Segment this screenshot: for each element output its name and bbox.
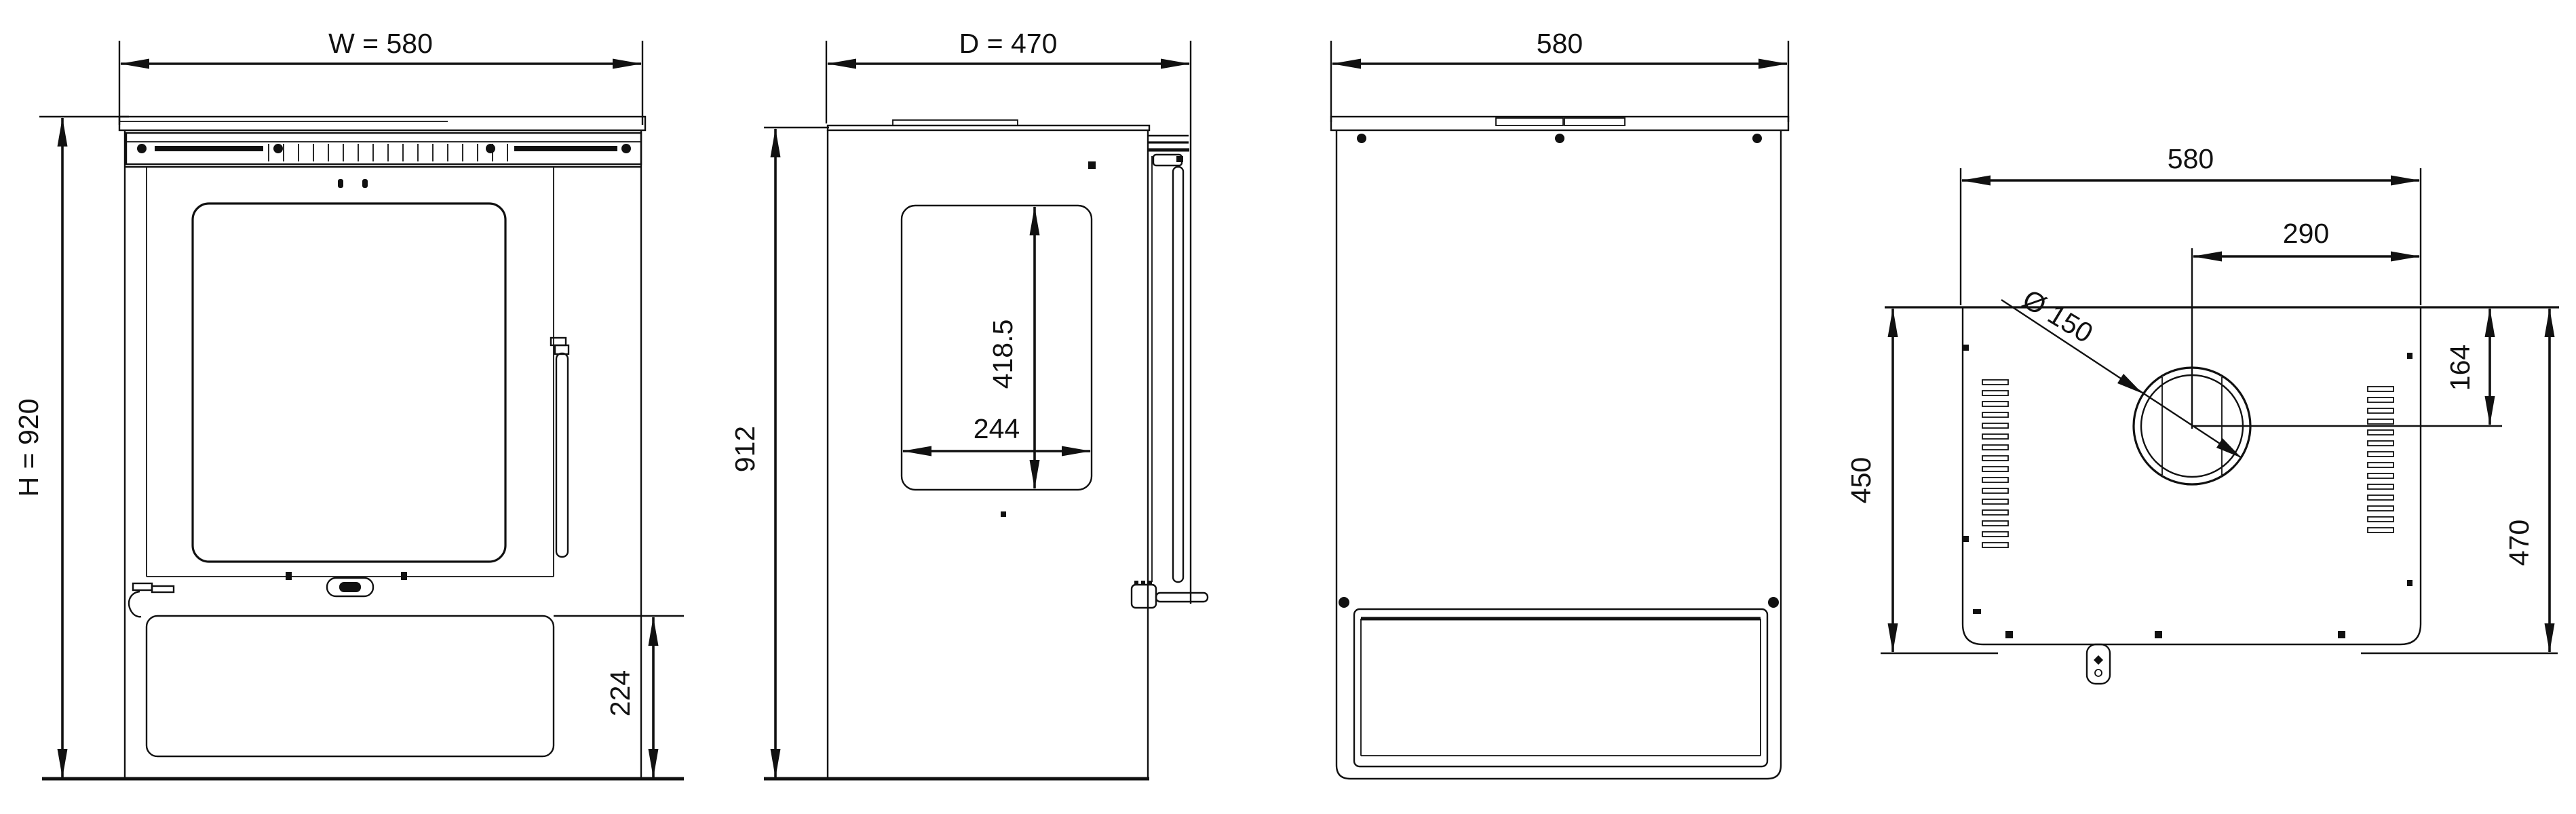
front-width-label: W = 580 [328, 28, 433, 59]
top-fastener-marks [1963, 345, 2412, 638]
side-handle-bar [1173, 167, 1183, 582]
side-window-width-label: 244 [974, 413, 1020, 444]
front-height-dimension: H = 920 [13, 117, 129, 777]
top-left-vent-slots [1982, 380, 2008, 547]
front-air-grille [126, 133, 641, 164]
side-height-label: 912 [729, 426, 761, 472]
front-body-outline [125, 130, 641, 779]
front-width-dimension: W = 580 [119, 28, 642, 125]
top-view: 580 290 [1845, 143, 2559, 684]
back-body-outline [1337, 130, 1781, 779]
side-handle-bracket [1132, 585, 1156, 608]
door-top-vent-dot [362, 179, 368, 188]
side-height-dimension: 912 [729, 128, 829, 777]
front-door-bottom-details [129, 572, 407, 617]
side-depth-dimension: D = 470 [826, 28, 1191, 604]
flue-centerlines [2192, 248, 2502, 429]
front-view: W = 580 H = 920 [13, 28, 684, 779]
top-flue-offset-y-label: 164 [2444, 345, 2476, 391]
front-door-glass [193, 179, 505, 562]
door-hinge [152, 586, 174, 592]
back-width-dimension: 580 [1331, 28, 1788, 122]
door-hinge-hook [129, 592, 141, 617]
door-top-vent-dot [338, 179, 343, 188]
front-base-height-label: 224 [604, 670, 636, 716]
top-flue-diameter-callout: Ø 150 [2001, 284, 2242, 458]
side-window-height-dimension: 418.5 [987, 207, 1035, 488]
back-top-plate [1331, 117, 1788, 130]
front-top-plate [119, 117, 645, 130]
side-view: D = 470 912 [729, 28, 1208, 779]
front-height-label: H = 920 [13, 399, 44, 497]
side-door-and-handle [1132, 136, 1208, 608]
technical-drawing-page: W = 580 H = 920 [0, 0, 2576, 814]
side-window-height-label: 418.5 [987, 319, 1018, 389]
top-flue-offset-x-label: 290 [2283, 218, 2329, 249]
top-overall-depth-label: 470 [2503, 520, 2535, 566]
back-width-label: 580 [1537, 28, 1583, 59]
top-width-dimension: 580 [1961, 143, 2421, 305]
front-base-panel [147, 616, 554, 756]
stove-dimension-drawing: W = 580 H = 920 [0, 0, 2576, 814]
front-base-dimension: 224 [554, 616, 684, 777]
top-body-depth-label: 450 [1845, 457, 1877, 503]
top-body-depth-dimension: 450 [1845, 309, 1998, 653]
back-lower-panel [1339, 597, 1779, 767]
top-right-vent-slots [2368, 387, 2394, 532]
side-window-width-dimension: 244 [903, 413, 1090, 451]
back-view: 580 [1331, 28, 1788, 779]
side-body-outline [764, 130, 1152, 779]
side-depth-label: D = 470 [959, 28, 1058, 59]
side-top-plate [828, 120, 1149, 130]
side-latch-rod [1156, 593, 1208, 602]
top-flue-offset-x-dimension: 290 [2193, 218, 2419, 256]
top-width-label: 580 [2168, 143, 2214, 174]
top-overall-depth-dimension: 470 [2503, 309, 2550, 652]
door-latch-knob [339, 582, 361, 592]
top-flue-diameter-label: Ø 150 [2017, 284, 2098, 349]
top-flue-offset-y-dimension: 164 [2444, 309, 2490, 425]
top-front-bracket-tab [2087, 644, 2110, 684]
door-hinge [133, 583, 152, 590]
